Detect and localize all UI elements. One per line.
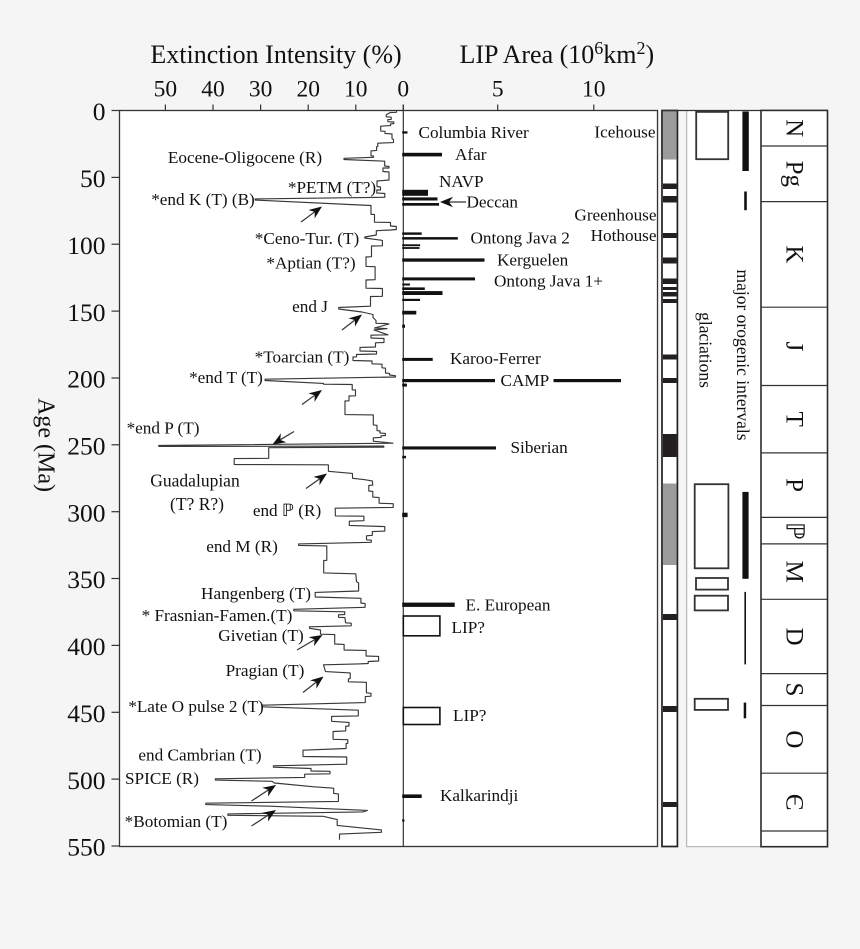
svg-text:550: 550 (67, 833, 105, 862)
svg-text:5: 5 (492, 77, 504, 103)
svg-text:major orogenic intervals: major orogenic intervals (733, 269, 753, 440)
svg-text:Deccan: Deccan (467, 193, 519, 212)
svg-text:* Frasnian-Famen.(T): * Frasnian-Famen.(T) (142, 606, 293, 625)
svg-text:Givetian (T): Givetian (T) (218, 626, 303, 645)
svg-text:Kalkarindji: Kalkarindji (440, 786, 519, 805)
svg-text:*Botomian (T): *Botomian (T) (125, 812, 228, 831)
svg-text:(T? R?): (T? R?) (170, 494, 224, 514)
svg-text:end M (R): end M (R) (206, 537, 278, 556)
svg-text:*Toarcian (T): *Toarcian (T) (255, 348, 350, 367)
svg-text:350: 350 (67, 565, 105, 594)
svg-text:30: 30 (249, 77, 273, 103)
svg-text:10: 10 (582, 77, 606, 103)
svg-text:K: K (781, 245, 808, 263)
svg-text:Pg: Pg (781, 161, 808, 188)
svg-text:*Aptian (T?): *Aptian (T?) (266, 254, 355, 273)
svg-text:D: D (781, 627, 808, 645)
svg-text:glaciations: glaciations (696, 312, 716, 388)
svg-text:300: 300 (67, 498, 105, 527)
svg-text:20: 20 (296, 77, 320, 103)
svg-text:M: M (781, 560, 808, 582)
svg-text:E. European: E. European (466, 596, 551, 615)
svg-text:Columbia River: Columbia River (419, 123, 530, 142)
svg-text:Age (Ma): Age (Ma) (33, 398, 59, 492)
svg-text:end Cambrian (T): end Cambrian (T) (138, 746, 261, 765)
svg-text:LIP?: LIP? (452, 618, 485, 637)
svg-text:Hothouse: Hothouse (591, 226, 657, 245)
svg-text:Afar: Afar (455, 145, 487, 164)
svg-text:Greenhouse: Greenhouse (574, 206, 656, 225)
svg-text:*PETM (T?): *PETM (T?) (288, 178, 376, 197)
svg-text:S: S (781, 683, 808, 697)
svg-text:end ℙ (R): end ℙ (R) (253, 501, 321, 520)
svg-text:Icehouse: Icehouse (594, 123, 655, 142)
svg-text:ℙ: ℙ (781, 522, 808, 540)
svg-text:*Ceno-Tur. (T): *Ceno-Tur. (T) (255, 229, 359, 248)
svg-text:Eocene-Oligocene (R): Eocene-Oligocene (R) (168, 148, 322, 167)
svg-text:400: 400 (67, 632, 105, 661)
svg-text:CAMP: CAMP (501, 371, 550, 390)
svg-text:200: 200 (67, 365, 105, 394)
svg-text:SPICE (R): SPICE (R) (125, 769, 199, 788)
svg-text:P: P (781, 478, 808, 492)
svg-text:*end K (T) (B): *end K (T) (B) (151, 190, 255, 209)
svg-text:*Late O pulse 2 (T): *Late O pulse 2 (T) (128, 697, 264, 716)
svg-text:T: T (781, 412, 808, 427)
svg-text:LIP Area (106km2): LIP Area (106km2) (460, 38, 655, 69)
svg-text:LIP?: LIP? (453, 706, 486, 725)
svg-text:450: 450 (67, 699, 105, 728)
svg-text:50: 50 (154, 77, 178, 103)
svg-text:500: 500 (67, 766, 105, 795)
svg-text:10: 10 (344, 77, 368, 103)
svg-text:J: J (781, 342, 808, 352)
svg-text:Extinction Intensity (%): Extinction Intensity (%) (150, 40, 401, 69)
svg-text:150: 150 (67, 298, 105, 327)
svg-text:100: 100 (67, 231, 105, 260)
svg-text:0: 0 (93, 97, 106, 126)
svg-text:0: 0 (397, 77, 409, 103)
svg-text:250: 250 (67, 432, 105, 461)
svg-text:O: O (781, 730, 808, 748)
svg-text:*end P (T): *end P (T) (127, 419, 200, 438)
svg-text:Siberian: Siberian (511, 438, 569, 457)
svg-text:50: 50 (80, 164, 106, 193)
svg-text:NAVP: NAVP (439, 172, 484, 191)
svg-text:40: 40 (201, 77, 225, 103)
svg-text:Karoo-Ferrer: Karoo-Ferrer (450, 349, 541, 368)
svg-text:Guadalupian: Guadalupian (150, 471, 240, 491)
svg-text:Ontong Java 1+: Ontong Java 1+ (494, 272, 603, 291)
svg-text:Є: Є (781, 794, 808, 811)
svg-text:Hangenberg (T): Hangenberg (T) (201, 584, 311, 603)
svg-text:end J: end J (292, 297, 328, 316)
svg-text:N: N (781, 119, 808, 137)
svg-text:*end T (T): *end T (T) (189, 368, 263, 387)
svg-text:Kerguelen: Kerguelen (497, 251, 569, 270)
svg-text:Pragian (T): Pragian (T) (226, 661, 305, 680)
svg-text:Ontong Java 2: Ontong Java 2 (471, 229, 570, 248)
